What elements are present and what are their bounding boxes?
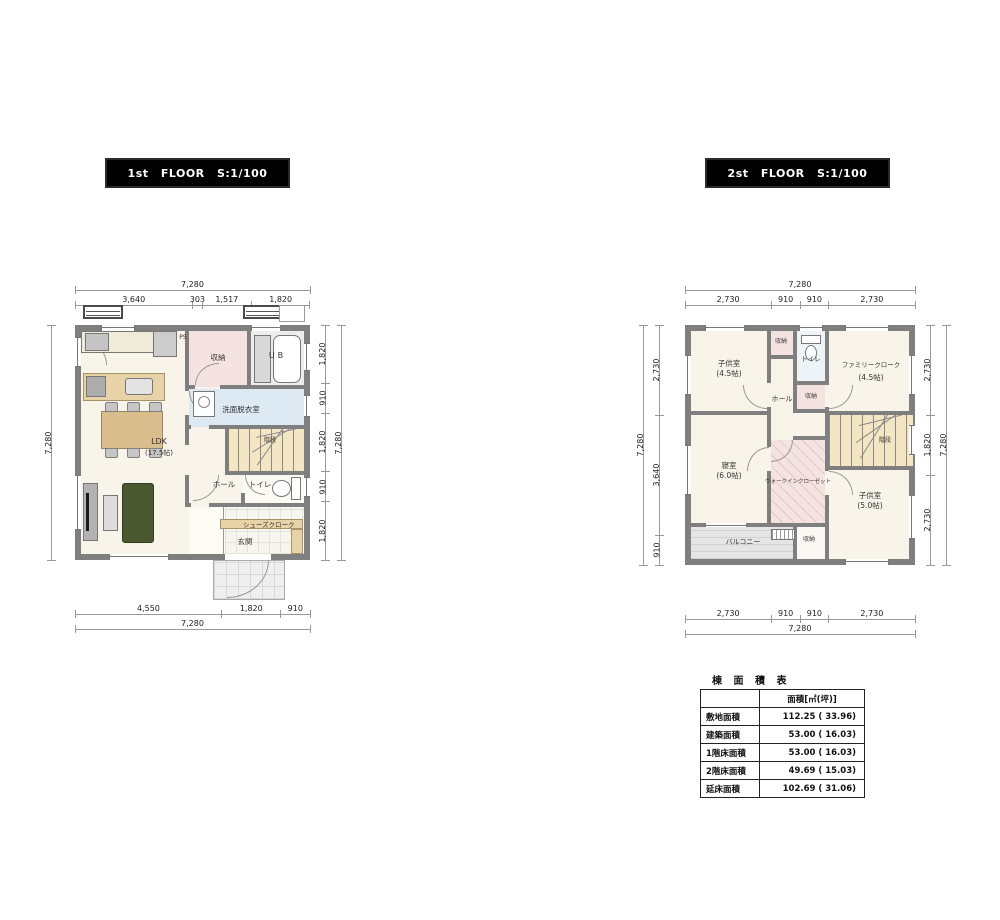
label-toilet-1f: トイレ xyxy=(243,480,277,490)
chair xyxy=(149,402,162,412)
label-kids2-name: 子供室 xyxy=(859,491,882,500)
toilet-tank xyxy=(801,335,821,344)
wall-segment xyxy=(185,385,195,389)
area-row-label: 延床面積 xyxy=(701,780,760,798)
label-unit-bath: UB xyxy=(251,351,304,362)
label-kids1-size: (4.5帖) xyxy=(716,369,741,378)
window xyxy=(304,395,310,417)
label-hall-2f: ホール xyxy=(765,395,799,404)
label-balcony: バルコニー xyxy=(703,538,783,547)
f1-dim-left-total: 7,280 xyxy=(44,325,58,560)
label-stairs-2f: 階段 xyxy=(873,437,897,445)
wall-segment xyxy=(747,523,825,527)
label-storage-a: 収納 xyxy=(769,338,793,346)
label-ldk-name: LDK xyxy=(151,437,167,446)
area-table-row: 敷地面積 112.25 ( 33.96) xyxy=(701,708,865,726)
f2-dim-bottom-segments: 2,730 910 910 2,730 xyxy=(685,606,915,620)
wall-segment xyxy=(185,475,189,505)
area-table-row: 1階床面積 53.00 ( 16.03) xyxy=(701,744,865,762)
label-entrance: 玄関 xyxy=(227,537,263,547)
first-floor-plan: PS 収納 UB 洗面脱衣室 階段 ホール トイレ シューズクローク 玄関 LD… xyxy=(75,325,310,560)
wall-segment xyxy=(225,429,229,473)
area-row-label: 2階床面積 xyxy=(701,762,760,780)
label-storage-c: 収納 xyxy=(793,536,825,544)
stairs-2f xyxy=(829,415,913,466)
area-row-label: 1階床面積 xyxy=(701,744,760,762)
wall-segment xyxy=(825,495,829,559)
label-kids2: 子供室 (5.0帖) xyxy=(830,491,910,511)
f2-dim-right-segments: 2,730 1,820 2,730 xyxy=(923,325,937,565)
label-bedroom: 寝室 (6.0帖) xyxy=(691,461,767,481)
f1-dim-bottom-total: 7,280 xyxy=(75,616,310,630)
second-floor-plan: 子供室 (4.5帖) 収納 トイレ ファミリークローク (4.5帖) ホール 収… xyxy=(685,325,915,565)
label-shoe-cloak: シューズクローク xyxy=(243,521,295,530)
wall-segment xyxy=(767,355,797,359)
second-floor-title: 2st FLOOR S:1/100 xyxy=(705,158,890,188)
area-table-corner-cell xyxy=(701,690,760,708)
wall-segment xyxy=(220,385,304,389)
label-storage-1f: 収納 xyxy=(187,353,249,363)
stairs-1f xyxy=(227,429,304,473)
chair xyxy=(105,402,118,412)
f2-dim-left-total: 7,280 xyxy=(636,325,650,565)
f2-dim-left-segments: 2,730 3,640 910 xyxy=(652,325,666,565)
wall-segment xyxy=(209,425,304,429)
wall-segment xyxy=(825,415,829,471)
f1-dim-right-segments: 1,820 910 1,820 910 1,820 xyxy=(318,325,332,560)
area-row-value: 102.69 ( 31.06) xyxy=(760,780,865,798)
kitchen-cabinet xyxy=(85,333,109,351)
area-row-value: 53.00 ( 16.03) xyxy=(760,726,865,744)
floorplan-sheet: 1st FLOOR S:1/100 2st FLOOR S:1/100 7,28… xyxy=(0,0,1000,920)
area-table-row: 建築面積 53.00 ( 16.03) xyxy=(701,726,865,744)
wall-segment xyxy=(691,411,771,415)
window xyxy=(799,325,823,331)
area-row-label: 敷地面積 xyxy=(701,708,760,726)
side-table xyxy=(103,495,118,531)
label-ps: PS xyxy=(174,334,192,342)
toilet-tank xyxy=(291,477,301,500)
label-kids1: 子供室 (4.5帖) xyxy=(691,359,767,379)
tv xyxy=(86,493,89,531)
area-table-row: 延床面積 102.69 ( 31.06) xyxy=(701,780,865,798)
area-table-row: 2階床面積 49.69 ( 15.03) xyxy=(701,762,865,780)
label-storage-b: 収納 xyxy=(797,393,825,401)
area-table: 面積[㎡(坪)] 敷地面積 112.25 ( 33.96) 建築面積 53.00… xyxy=(700,689,865,798)
window xyxy=(845,325,889,331)
f1-dim-bottom-segments: 4,550 1,820 910 xyxy=(75,601,310,615)
label-stairs-1f: 階段 xyxy=(258,437,282,445)
area-row-label: 建築面積 xyxy=(701,726,760,744)
label-family-closet: ファミリークローク xyxy=(829,361,913,370)
chair xyxy=(105,448,118,458)
window-shutter-icon xyxy=(243,305,283,319)
f2-dim-top-total: 7,280 xyxy=(685,277,915,291)
sofa xyxy=(122,483,154,543)
f2-dim-bottom-total: 7,280 xyxy=(685,621,915,635)
label-bedroom-name: 寝室 xyxy=(722,461,737,470)
area-table-header-row: 面積[㎡(坪)] xyxy=(701,690,865,708)
window xyxy=(109,554,169,560)
f2-dim-right-total: 7,280 xyxy=(939,325,953,565)
wall-segment xyxy=(793,436,829,440)
area-row-value: 49.69 ( 15.03) xyxy=(760,762,865,780)
wall-segment xyxy=(825,411,913,415)
label-hall-1f: ホール xyxy=(203,480,245,490)
window xyxy=(304,477,310,497)
f1-dim-top-segments: 3,640 303 1,517 1,820 xyxy=(75,292,310,306)
wall-segment xyxy=(825,466,913,470)
window xyxy=(251,325,281,331)
label-family-closet-size: (4.5帖) xyxy=(829,373,913,383)
wall-segment xyxy=(691,523,705,527)
window-shutter-icon xyxy=(83,305,123,319)
area-row-value: 53.00 ( 16.03) xyxy=(760,744,865,762)
wall-segment xyxy=(241,493,245,503)
label-kids2-size: (5.0帖) xyxy=(857,501,882,510)
area-row-value: 112.25 ( 33.96) xyxy=(760,708,865,726)
f1-dim-top-total: 7,280 xyxy=(75,277,310,291)
area-table-title: 棟 面 積 表 xyxy=(712,672,790,687)
label-washroom: 洗面脱衣室 xyxy=(191,405,291,415)
label-wic: ウォークインクローゼット xyxy=(765,479,831,486)
genkan-step-line xyxy=(223,507,224,554)
balcony-door xyxy=(705,523,747,527)
wall-segment xyxy=(185,503,191,507)
window xyxy=(705,325,745,331)
f1-dim-right-total: 7,280 xyxy=(334,325,348,560)
sink xyxy=(125,378,153,395)
stove xyxy=(86,376,106,397)
window xyxy=(845,559,889,565)
window xyxy=(75,475,81,530)
f2-dim-top-segments: 2,730 910 910 2,730 xyxy=(685,292,915,306)
wall-segment xyxy=(793,409,829,413)
first-floor-title: 1st FLOOR S:1/100 xyxy=(105,158,290,188)
window xyxy=(909,425,915,455)
label-toilet-2f: トイレ xyxy=(797,355,825,364)
label-ldk: LDK (17.5帖) xyxy=(127,437,191,459)
label-ldk-size: (17.5帖) xyxy=(145,449,173,457)
area-table-header-cell: 面積[㎡(坪)] xyxy=(760,690,865,708)
label-bedroom-size: (6.0帖) xyxy=(716,471,741,480)
chair xyxy=(127,402,140,412)
shoe-counter xyxy=(291,529,303,554)
eaves-outline xyxy=(279,305,305,322)
window xyxy=(304,343,310,371)
wall-segment xyxy=(793,381,829,385)
label-kids1-name: 子供室 xyxy=(718,359,741,368)
